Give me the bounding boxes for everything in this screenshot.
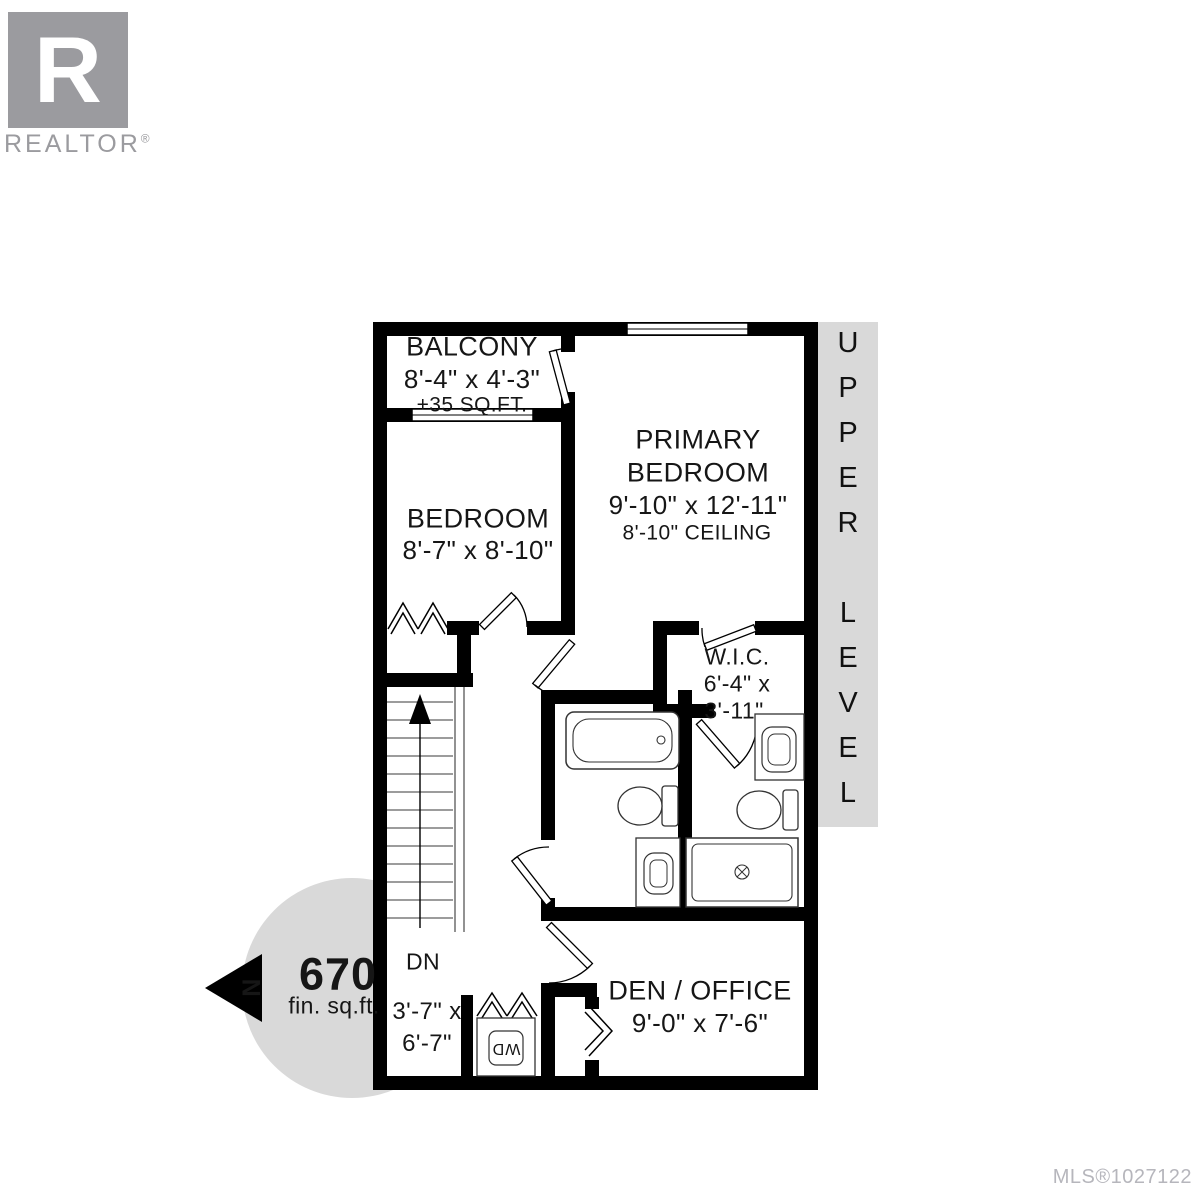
wic-dims-2: 3'-11" [704, 700, 763, 723]
bathtub [566, 712, 679, 769]
sink-ensuite [755, 714, 804, 780]
bedroom-dims: 8'-7" x 8'-10" [402, 537, 553, 563]
area-value: 670 [299, 952, 377, 997]
wic-label: W.I.C. [704, 646, 769, 669]
primary-bedroom-ceiling: 8'-10" CEILING [623, 523, 772, 544]
toilet-ensuite [737, 790, 798, 830]
sink-main-bath [636, 838, 680, 907]
floorplan-drawing [0, 0, 1200, 1200]
hallway-dims-1: 3'-7" x [392, 1000, 461, 1024]
floorplan-page: BALCONY 8'-4" x 4'-3" +35 SQ.FT. PRIMARY… [0, 0, 1200, 1200]
den-office-dims: 9'-0" x 7'-6" [632, 1010, 768, 1036]
primary-bedroom-label-1: PRIMARY [635, 427, 760, 454]
toilet-main-bath [618, 786, 678, 826]
registered-mark: ® [141, 132, 150, 146]
balcony-label: BALCONY [406, 334, 538, 361]
balcony-area-note: +35 SQ.FT. [417, 395, 528, 416]
stairs-down-label: DN [406, 951, 440, 974]
mls-number: MLS®1027122 [1053, 1166, 1192, 1189]
bedroom-label: BEDROOM [407, 506, 549, 533]
realtor-wordmark-text: REALTOR [4, 130, 141, 158]
wic-dims-1: 6'-4" x [704, 673, 771, 696]
hallway-dims-2: 6'-7" [402, 1032, 452, 1056]
washer-dryer-label: WD [492, 1040, 521, 1056]
primary-bedroom-label-2: BEDROOM [627, 460, 769, 487]
north-letter: N [238, 979, 263, 997]
realtor-logo: R [8, 12, 128, 128]
primary-bedroom-dims: 9'-10" x 12'-11" [609, 492, 788, 518]
realtor-wordmark: REALTOR® [4, 130, 144, 159]
den-office-label: DEN / OFFICE [608, 978, 791, 1005]
area-unit: fin. sq.ft. [288, 995, 379, 1018]
realtor-logo-letter: R [34, 16, 102, 124]
balcony-dims: 8'-4" x 4'-3" [404, 366, 540, 392]
level-banner: UPPER LEVEL [818, 322, 878, 827]
shower [686, 838, 798, 907]
